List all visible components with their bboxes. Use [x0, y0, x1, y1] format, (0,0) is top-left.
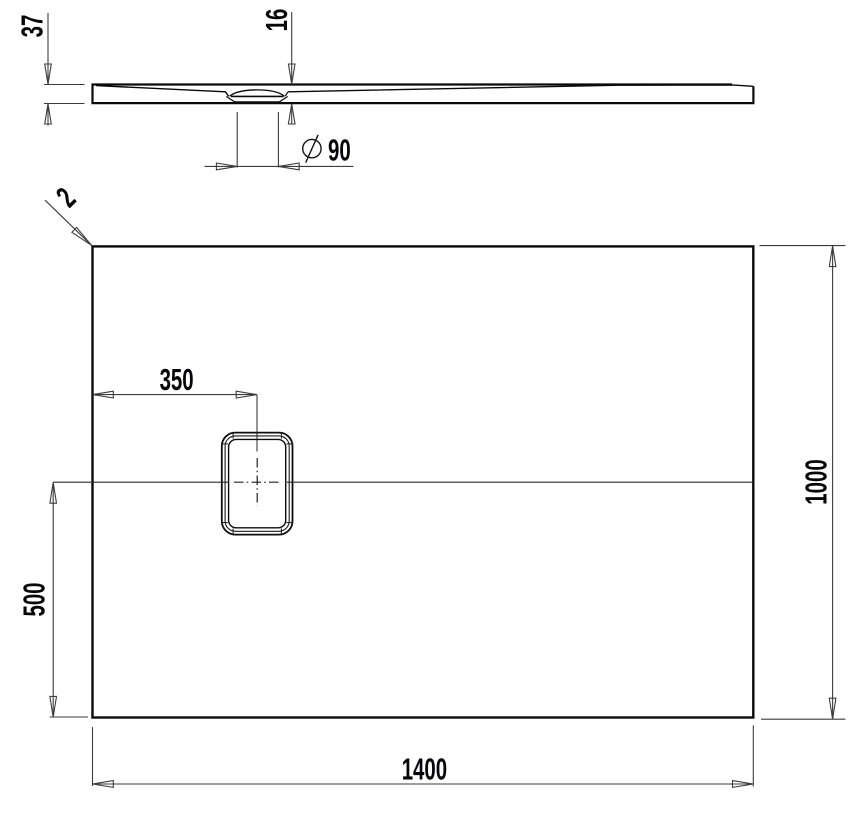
svg-text:37: 37 [16, 15, 49, 38]
svg-text:16: 16 [261, 9, 294, 32]
svg-text:350: 350 [160, 364, 194, 397]
svg-text:1400: 1400 [402, 754, 447, 787]
svg-text:500: 500 [18, 582, 51, 616]
svg-text:90: 90 [328, 135, 351, 168]
svg-text:1000: 1000 [801, 459, 834, 504]
